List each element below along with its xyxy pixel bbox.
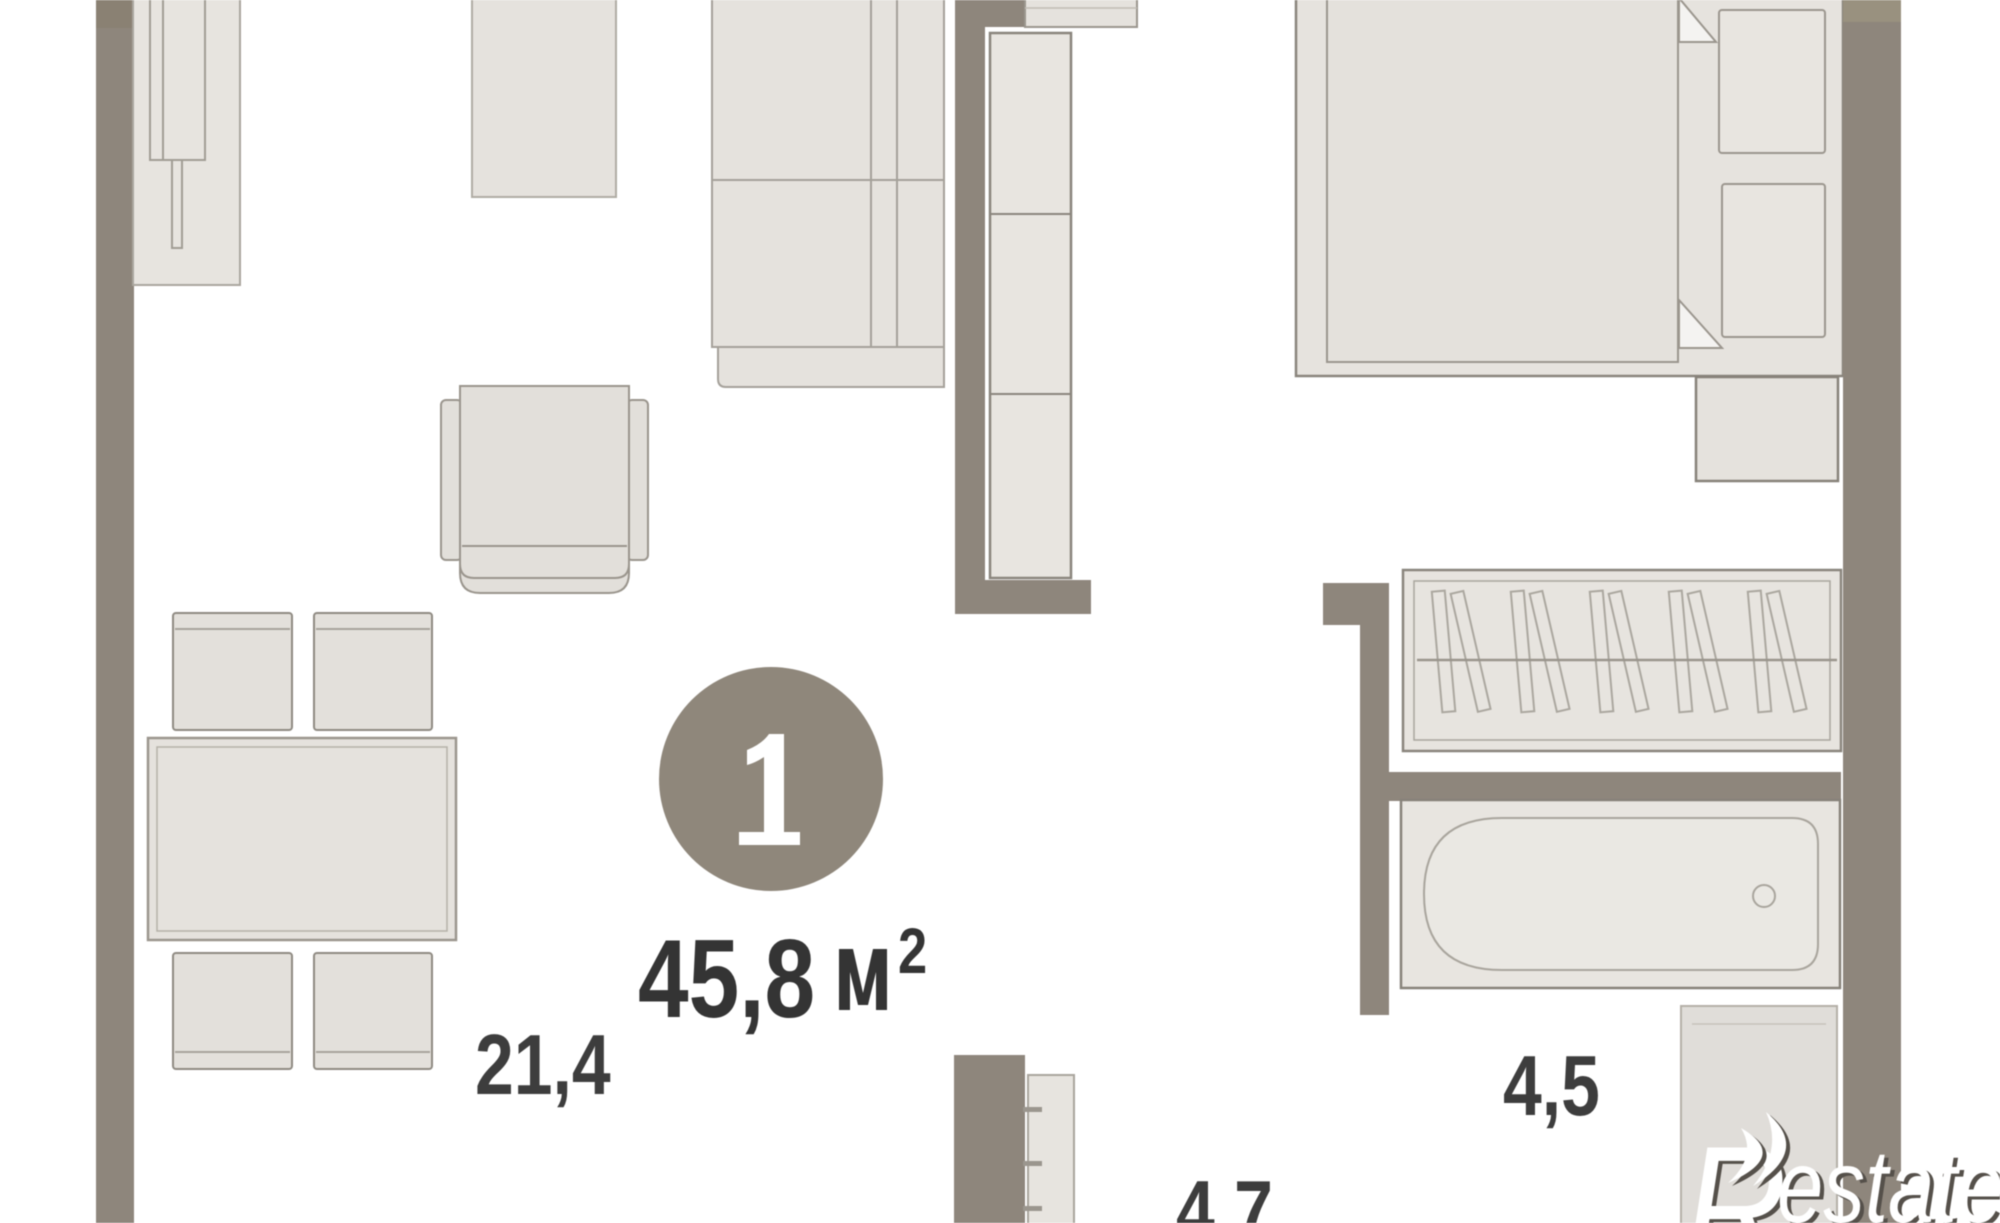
svg-text:45,8: 45,8 — [638, 916, 815, 1041]
svg-text:21,4: 21,4 — [475, 1019, 611, 1113]
svg-text:2: 2 — [898, 916, 927, 987]
svg-text:4,5: 4,5 — [1503, 1040, 1600, 1134]
svg-text:4,7: 4,7 — [1176, 1165, 1273, 1223]
svg-text:estate: estate — [1777, 1128, 2000, 1223]
